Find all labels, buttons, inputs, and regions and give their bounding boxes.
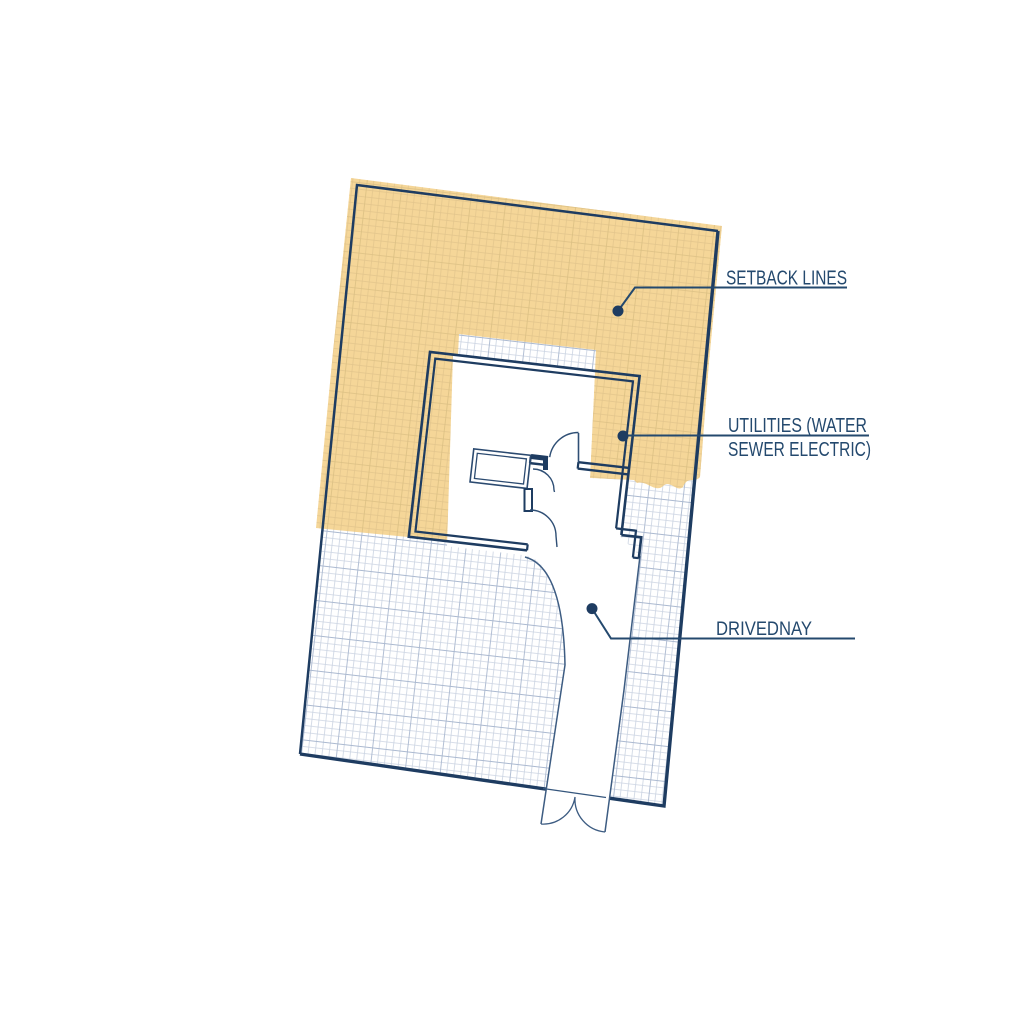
svg-text:DRIVEDNAY: DRIVEDNAY: [716, 618, 812, 640]
svg-text:SEWER ELECTRIC): SEWER ELECTRIC): [728, 439, 871, 461]
svg-text:SETBACK LINES: SETBACK LINES: [726, 268, 847, 290]
svg-text:UTILITIES (WATER: UTILITIES (WATER: [728, 415, 867, 437]
